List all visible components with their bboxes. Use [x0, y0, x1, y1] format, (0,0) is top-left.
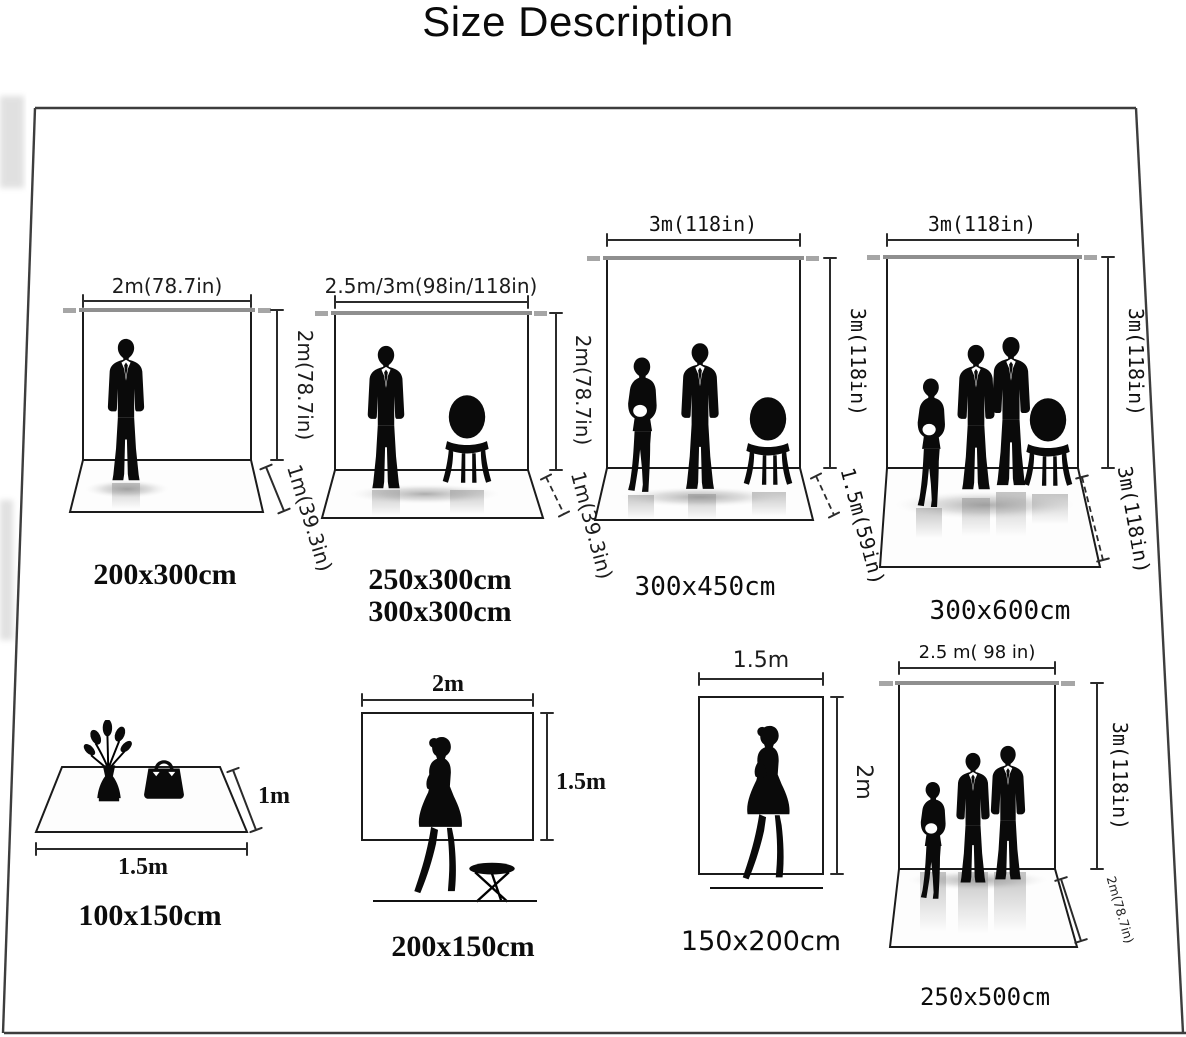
panel-100x150: 1m 1.5m 100x150cm [36, 719, 290, 932]
clamp-left-icon [587, 256, 600, 261]
panel-200x150: 2m 1.5m 200x150cm [362, 671, 606, 963]
height-dimension-label: 2m(78.7in) [293, 330, 317, 441]
panel-250x300-300x300: 2.5m/3m(98in/118in) 2m(78.7in) 1m(39.3in… [315, 274, 618, 628]
height-dimension-arrow [541, 713, 553, 840]
clamp-left-icon [867, 255, 880, 260]
floor-dimension-label: 2m(78.7in) [1104, 874, 1137, 945]
height-dimension-arrow [1102, 257, 1114, 468]
panel-300x450: 3m(118in) 3m(118in) 1.5m(59in) 300x450cm [587, 212, 890, 602]
page-title: Size Description [0, 0, 1156, 46]
clamp-right-icon [1061, 681, 1075, 686]
reflection [962, 498, 990, 536]
size-label: 200x300cm [93, 558, 236, 591]
panel-300x600: 3m(118in) 3m(118in) 3m(118in) 300x600cm [867, 212, 1155, 626]
clamp-right-icon [258, 308, 271, 313]
width-dimension-label: 2m(78.7in) [112, 274, 223, 298]
reflection [752, 492, 786, 516]
width-dimension-label: 3m(118in) [928, 212, 1036, 236]
reflection [450, 490, 484, 514]
size-label: 250x500cm [920, 983, 1050, 1011]
backdrop-200x300 [83, 310, 251, 460]
reflection [1032, 494, 1068, 524]
reflection [996, 492, 1026, 536]
size-diagram-canvas: 2m(78.7in) 2m(78.7in) 1m(39.3in) 200x300… [0, 0, 1186, 1037]
size-label-2: 300x300cm [368, 595, 511, 628]
crossbar-200x300 [79, 308, 255, 312]
reflection [372, 490, 400, 516]
backdrop-250x300 [335, 313, 528, 470]
height-dimension-arrow [824, 258, 836, 468]
mat-100x150 [36, 767, 247, 832]
width-dimension-label: 2.5m/3m(98in/118in) [325, 274, 538, 298]
floor-dimension-label: 1.5m(59in) [836, 465, 890, 588]
floor-dimension-label: 3m(118in) [1113, 464, 1155, 575]
height-dimension-label: 1m [258, 783, 290, 809]
floor-dimension-arrow [546, 477, 564, 514]
height-dimension-arrow [831, 697, 843, 874]
height-dimension-label: 1.5m [556, 769, 606, 795]
panel-250x500: 2.5 m( 98 in) 3m(118in) 2m(78.7in) 250x5… [879, 642, 1137, 1011]
panel-150x200: 1.5m 2m 150x200cm [681, 648, 876, 957]
width-dimension-label: 3m(118in) [649, 212, 757, 236]
crossbar-250x500 [895, 681, 1059, 685]
reflection [994, 872, 1026, 932]
size-label: 300x450cm [635, 572, 776, 602]
height-dimension-label: 3m(118in) [846, 308, 870, 416]
width-dimension-label: 1.5m [733, 648, 789, 673]
size-label: 100x150cm [78, 899, 221, 932]
crossbar-250x300 [331, 311, 532, 315]
width-dimension-label: 2.5 m( 98 in) [919, 642, 1036, 663]
clamp-left-icon [315, 311, 328, 316]
clamp-right-icon [806, 256, 819, 261]
panel-200x300: 2m(78.7in) 2m(78.7in) 1m(39.3in) 200x300… [63, 274, 337, 591]
reflection [628, 495, 654, 519]
height-dimension-arrow [271, 310, 283, 460]
height-dimension-label: 2m(78.7in) [571, 335, 595, 446]
size-label: 300x600cm [930, 596, 1071, 626]
height-dimension-label: 2m [851, 764, 876, 799]
width-dimension-label: 1.5m [118, 854, 168, 880]
clamp-right-icon [534, 311, 547, 316]
size-label: 250x300cm [368, 563, 511, 596]
floor-dimension-arrow [816, 476, 834, 515]
height-dimension-label: 3m(118in) [1124, 308, 1148, 416]
clamp-right-icon [1084, 255, 1097, 260]
size-label: 150x200cm [681, 926, 841, 957]
width-dimension-arrow [899, 662, 1055, 674]
width-dimension-arrow [699, 673, 823, 685]
crossbar-300x600 [883, 255, 1082, 259]
size-description-diagram: 2m(78.7in) 2m(78.7in) 1m(39.3in) 200x300… [0, 0, 1186, 1037]
reflection [916, 508, 942, 538]
size-label: 200x150cm [391, 930, 534, 963]
clamp-left-icon [879, 681, 893, 686]
height-dimension-arrow [1091, 683, 1103, 869]
stool-silhouette [469, 863, 514, 902]
reflection [688, 494, 716, 520]
height-dimension-arrow [550, 313, 562, 470]
height-dimension-label: 3m(118in) [1108, 722, 1132, 830]
clamp-left-icon [63, 308, 76, 313]
crossbar-300x450 [603, 256, 804, 260]
width-dimension-label: 2m [432, 671, 464, 697]
reflection [112, 483, 140, 509]
